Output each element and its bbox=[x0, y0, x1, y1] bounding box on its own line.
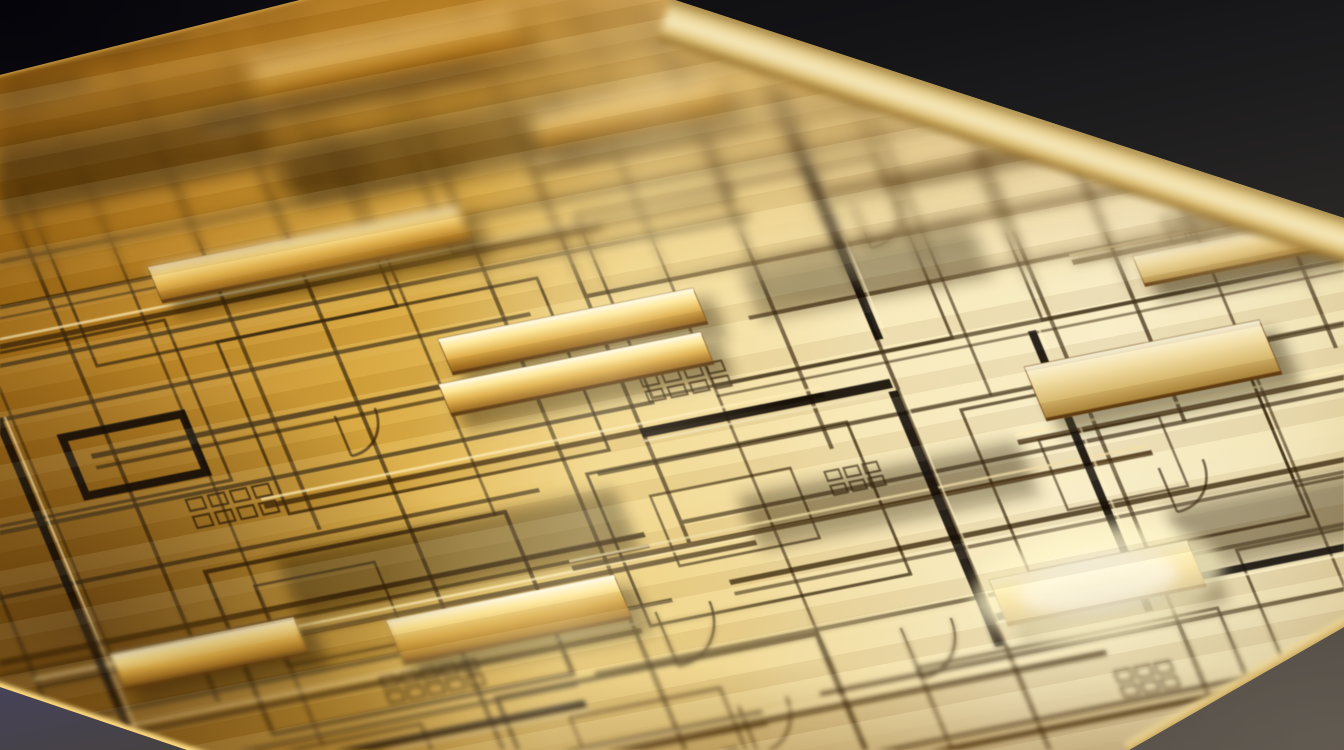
golden-blueprint-photo bbox=[0, 0, 1344, 750]
